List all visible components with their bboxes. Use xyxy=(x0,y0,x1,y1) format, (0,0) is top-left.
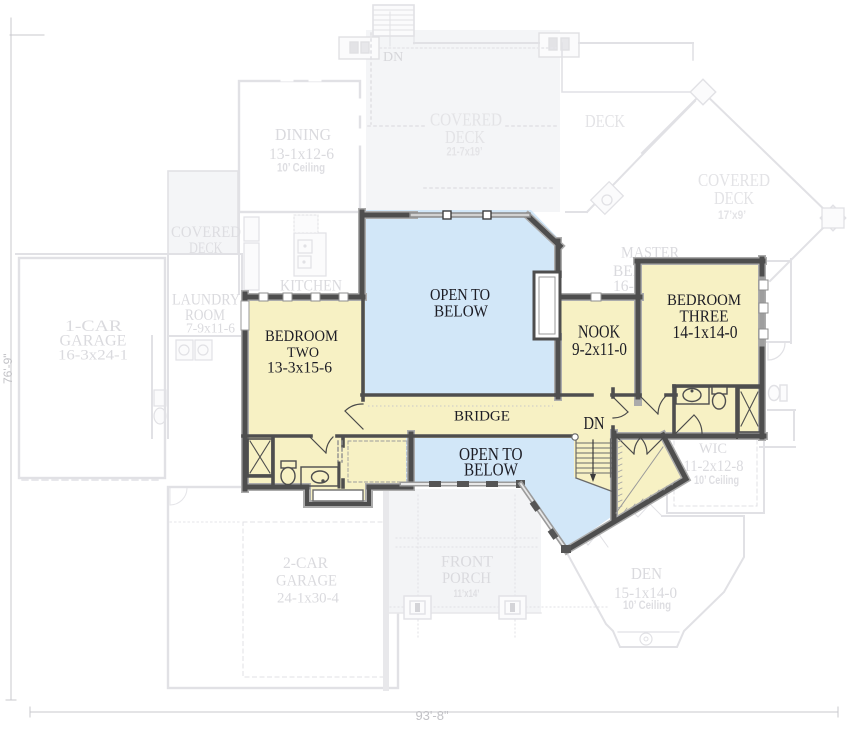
svg-text:DECK: DECK xyxy=(714,188,754,208)
svg-text:24-1x30-4: 24-1x30-4 xyxy=(277,591,339,607)
svg-text:DN: DN xyxy=(383,50,403,65)
svg-text:16-3x24-1: 16-3x24-1 xyxy=(58,348,128,364)
svg-text:COVERED: COVERED xyxy=(171,224,241,241)
svg-text:7-9x11-6: 7-9x11-6 xyxy=(186,322,235,337)
svg-text:KITCHEN: KITCHEN xyxy=(280,278,342,295)
svg-text:DEN: DEN xyxy=(631,564,662,583)
svg-text:14-1x14-0: 14-1x14-0 xyxy=(673,322,738,342)
svg-text:11’x14’: 11’x14’ xyxy=(454,588,480,600)
svg-text:10’ Ceiling: 10’ Ceiling xyxy=(623,598,671,612)
svg-text:BELOW: BELOW xyxy=(434,302,488,321)
svg-text:PORCH: PORCH xyxy=(442,570,491,587)
svg-text:9-2x11-0: 9-2x11-0 xyxy=(572,339,627,359)
svg-text:DECK: DECK xyxy=(585,111,625,131)
svg-text:FRONT: FRONT xyxy=(441,554,493,571)
svg-text:WIC: WIC xyxy=(699,441,727,457)
svg-text:10’ Ceiling: 10’ Ceiling xyxy=(277,161,325,175)
svg-text:COVERED: COVERED xyxy=(698,170,770,190)
svg-text:DECK: DECK xyxy=(189,240,223,257)
svg-text:BRIDGE: BRIDGE xyxy=(454,409,510,425)
svg-text:13-3x15-6: 13-3x15-6 xyxy=(267,360,332,377)
svg-text:10’ Ceiling: 10’ Ceiling xyxy=(694,473,739,487)
svg-text:GARAGE: GARAGE xyxy=(276,573,337,590)
svg-text:BEDROOM: BEDROOM xyxy=(265,328,338,345)
svg-text:93'-8": 93'-8" xyxy=(415,708,449,723)
svg-text:LAUNDRY: LAUNDRY xyxy=(172,292,240,309)
svg-text:BELOW: BELOW xyxy=(464,460,518,480)
svg-text:DINING: DINING xyxy=(275,125,331,144)
svg-text:DN: DN xyxy=(584,413,605,433)
svg-text:21-7x19’: 21-7x19’ xyxy=(447,145,483,159)
svg-text:17’x9’: 17’x9’ xyxy=(718,208,746,222)
svg-text:2-CAR: 2-CAR xyxy=(283,555,328,572)
svg-text:76'-9": 76'-9" xyxy=(1,353,15,384)
